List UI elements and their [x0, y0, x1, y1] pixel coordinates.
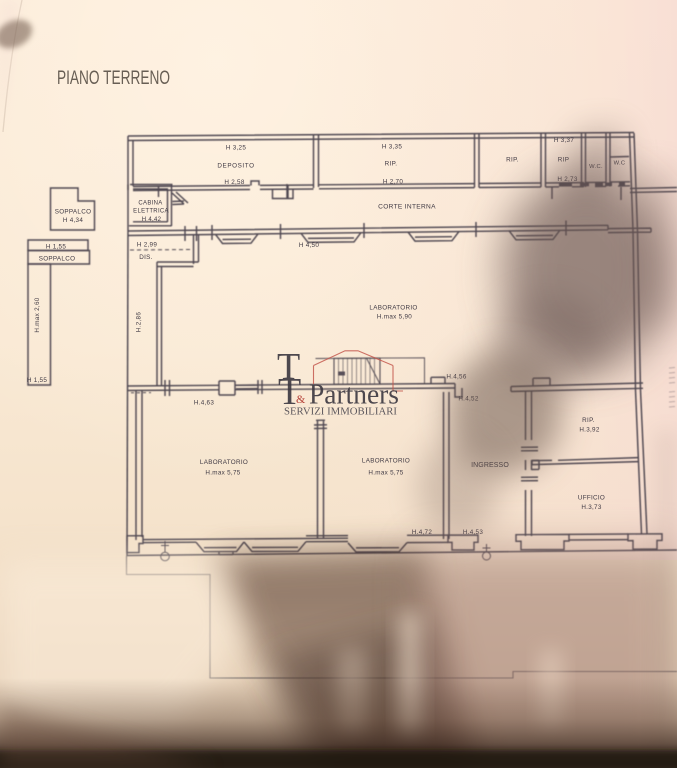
svg-text:H 3,37: H 3,37: [554, 137, 575, 144]
svg-text:SOPPALCO: SOPPALCO: [39, 256, 76, 263]
svg-text:H 4,42: H 4,42: [142, 217, 162, 223]
svg-text:PIANO TERRENO: PIANO TERRENO: [57, 67, 170, 89]
svg-text:SOPPALCO: SOPPALCO: [55, 209, 92, 216]
svg-text:H 3,25: H 3,25: [226, 145, 247, 152]
svg-text:H.max 5,75: H.max 5,75: [205, 470, 240, 477]
svg-text:&: &: [296, 392, 306, 406]
svg-text:UFFICIO: UFFICIO: [578, 495, 605, 502]
svg-text:H 1,55: H 1,55: [46, 244, 67, 251]
svg-text:LABORATORIO: LABORATORIO: [362, 458, 410, 465]
svg-text:RIP.: RIP.: [385, 161, 398, 168]
svg-text:LABORATORIO: LABORATORIO: [369, 305, 417, 312]
svg-text:DEPOSITO: DEPOSITO: [217, 163, 254, 170]
svg-text:RIP.: RIP.: [582, 417, 595, 424]
svg-text:H.3,92: H.3,92: [579, 427, 600, 434]
svg-text:H.max 2,60: H.max 2,60: [34, 297, 41, 332]
svg-text:H.4,63: H.4,63: [194, 400, 215, 407]
svg-text:H 2,58: H 2,58: [224, 179, 245, 186]
svg-text:H 3,35: H 3,35: [382, 144, 403, 151]
svg-text:H 4,34: H 4,34: [63, 217, 84, 224]
svg-text:H.4,72: H.4,72: [412, 529, 433, 536]
svg-text:H.2,86: H.2,86: [136, 312, 143, 333]
svg-text:ELETTRICA: ELETTRICA: [133, 209, 169, 215]
svg-text:H 1,55: H 1,55: [27, 377, 48, 384]
svg-text:H 4,50: H 4,50: [299, 242, 320, 249]
svg-text:H.max 5,75: H.max 5,75: [368, 470, 403, 477]
svg-text:CORTE INTERNA: CORTE INTERNA: [378, 204, 436, 211]
svg-text:RIP.: RIP.: [506, 157, 519, 164]
svg-text:H 2,99: H 2,99: [137, 242, 158, 249]
svg-text:SERVIZI IMMOBILIARI: SERVIZI IMMOBILIARI: [284, 406, 397, 418]
svg-text:H 2,70: H 2,70: [383, 179, 404, 186]
svg-text:CABINA: CABINA: [138, 201, 162, 207]
svg-text:DIS.: DIS.: [139, 254, 152, 261]
svg-text:H.3,73: H.3,73: [581, 504, 602, 511]
svg-text:H.max 5,90: H.max 5,90: [377, 314, 412, 321]
svg-text:LABORATORIO: LABORATORIO: [200, 459, 248, 466]
